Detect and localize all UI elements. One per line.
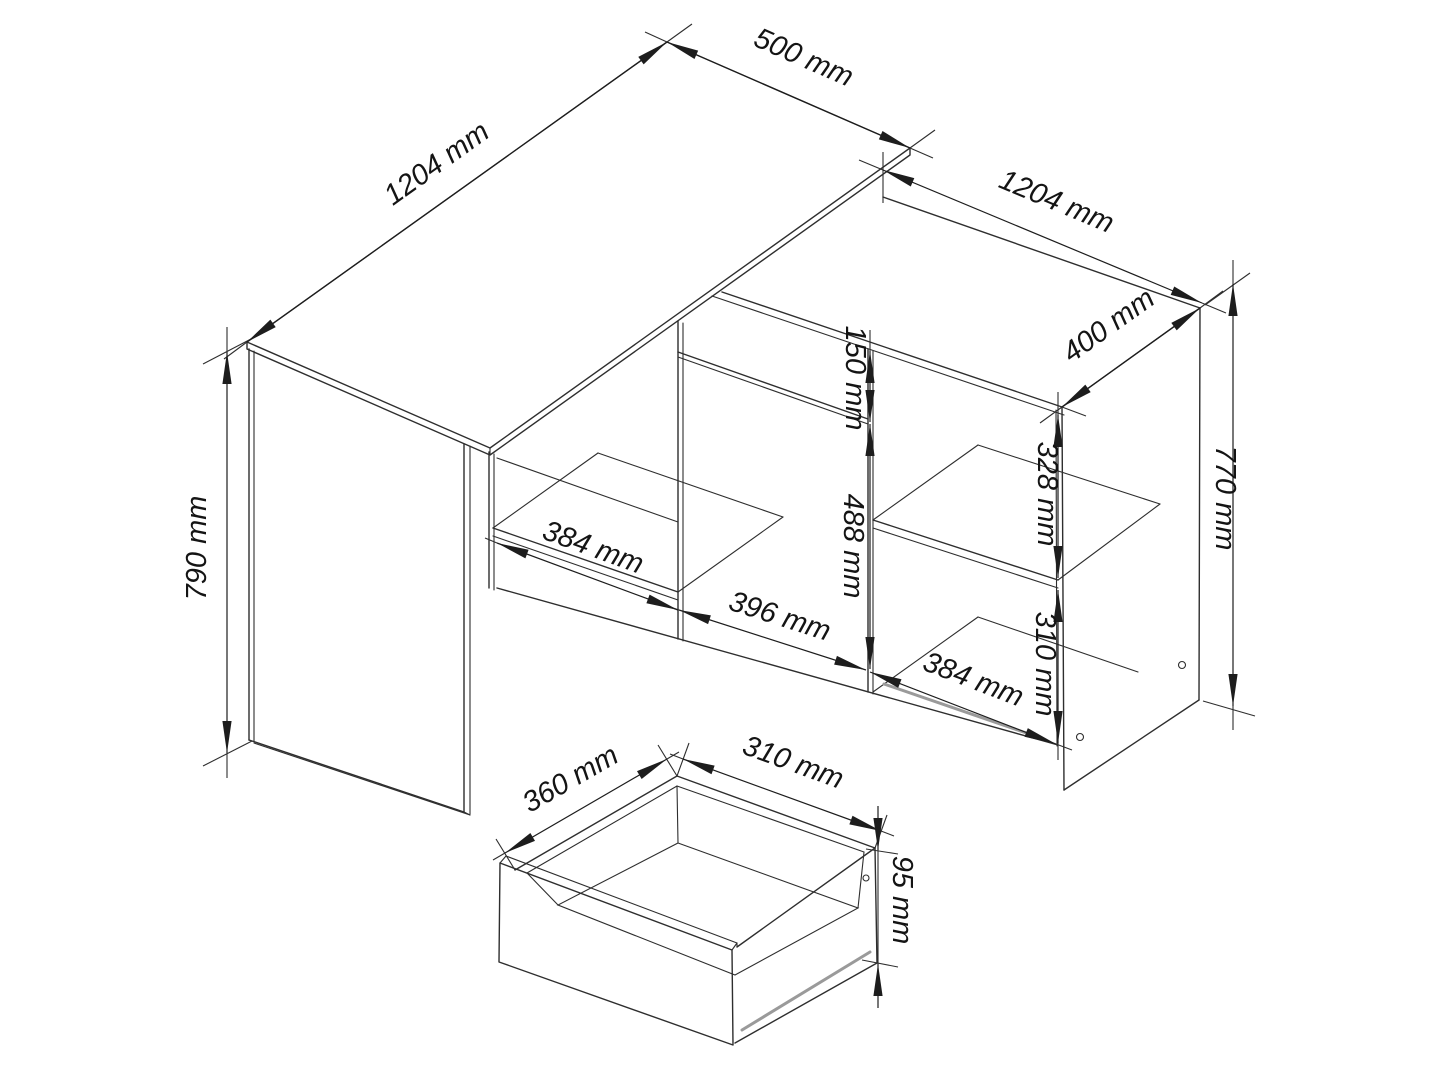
dim-upper-right-compartment-label: 328 mm <box>1031 442 1063 547</box>
desktop-thickness <box>247 148 910 455</box>
dim-desk-height-label: 790 mm <box>181 496 213 601</box>
right-compartment-shelf <box>873 445 1160 588</box>
dim-drawer-side-height-label: 95 mm <box>886 856 918 945</box>
dim-desktop-length-label: 1204 mm <box>378 116 495 212</box>
dim-right-compartment-width-label: 384 mm <box>919 646 1028 713</box>
cabinet-top-rail <box>497 458 678 522</box>
dim-desktop-depth-label: 500 mm <box>749 22 858 93</box>
cabinet-right-panel <box>1056 308 1200 790</box>
left-side-panel <box>249 349 470 815</box>
dim-lower-right-compartment-label: 310 mm <box>1029 612 1061 717</box>
dimension-labels: 1204 mm 500 mm 1204 mm 400 mm 770 mm 790… <box>181 22 1241 944</box>
left-compartment-shelf <box>493 453 783 600</box>
dim-door-width-label: 396 mm <box>725 585 835 647</box>
dim-cabinet-height-label: 770 mm <box>1209 446 1241 551</box>
dim-drawer-front-height-label: 150 mm <box>839 326 871 431</box>
dim-drawer-depth-label: 360 mm <box>517 739 624 819</box>
technical-drawing: 1204 mm 500 mm 1204 mm 400 mm 770 mm 790… <box>0 0 1445 1068</box>
dim-door-height-label: 488 mm <box>837 494 869 599</box>
dim-cabinet-length-label: 1204 mm <box>995 164 1119 240</box>
drawer-detail <box>499 776 877 1045</box>
desktop-top-face <box>247 42 910 448</box>
drawer-hole-icon <box>863 875 869 881</box>
panel-hole-icon <box>1179 662 1186 669</box>
dimension-lines <box>203 24 1255 1008</box>
panel-hole-icon <box>1077 734 1084 741</box>
drawing-canvas: 1204 mm 500 mm 1204 mm 400 mm 770 mm 790… <box>0 0 1445 1068</box>
dim-cabinet-depth-label: 400 mm <box>1057 282 1161 369</box>
